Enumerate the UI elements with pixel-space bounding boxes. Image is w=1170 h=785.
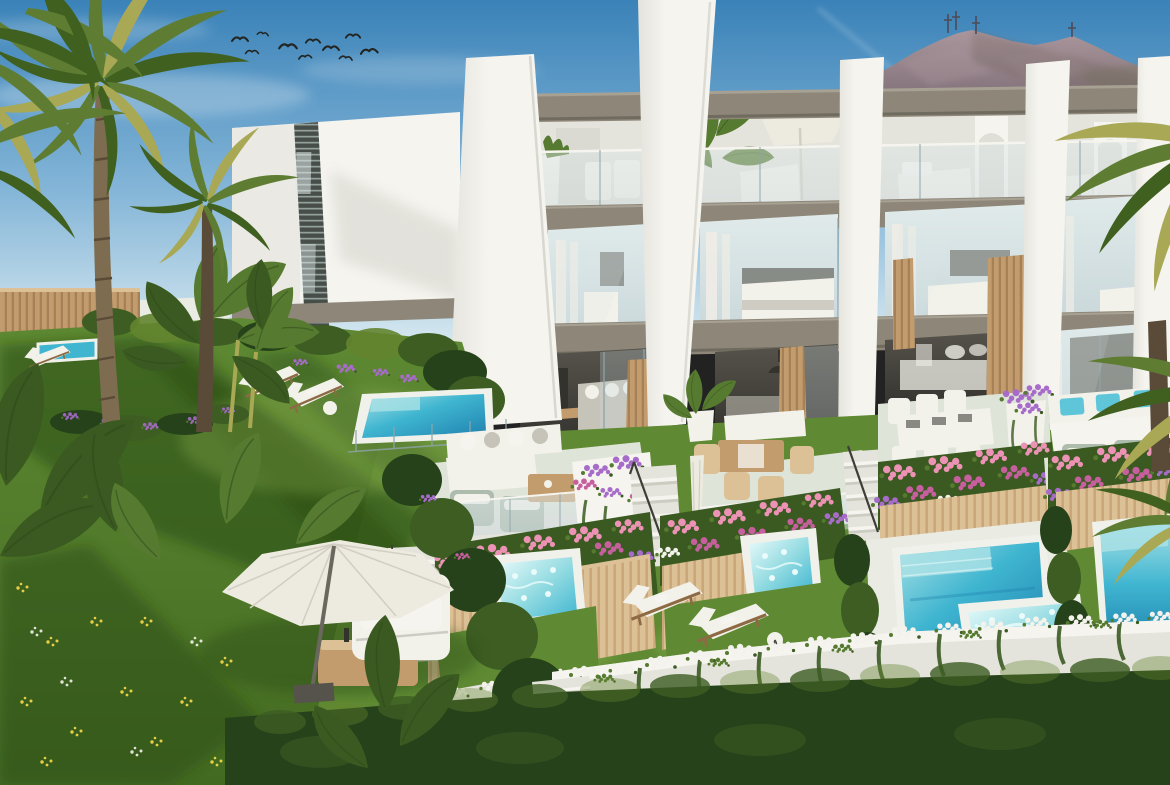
render-viewport [0,0,1170,785]
architectural-render [0,0,1170,785]
fin-3 [838,57,884,455]
